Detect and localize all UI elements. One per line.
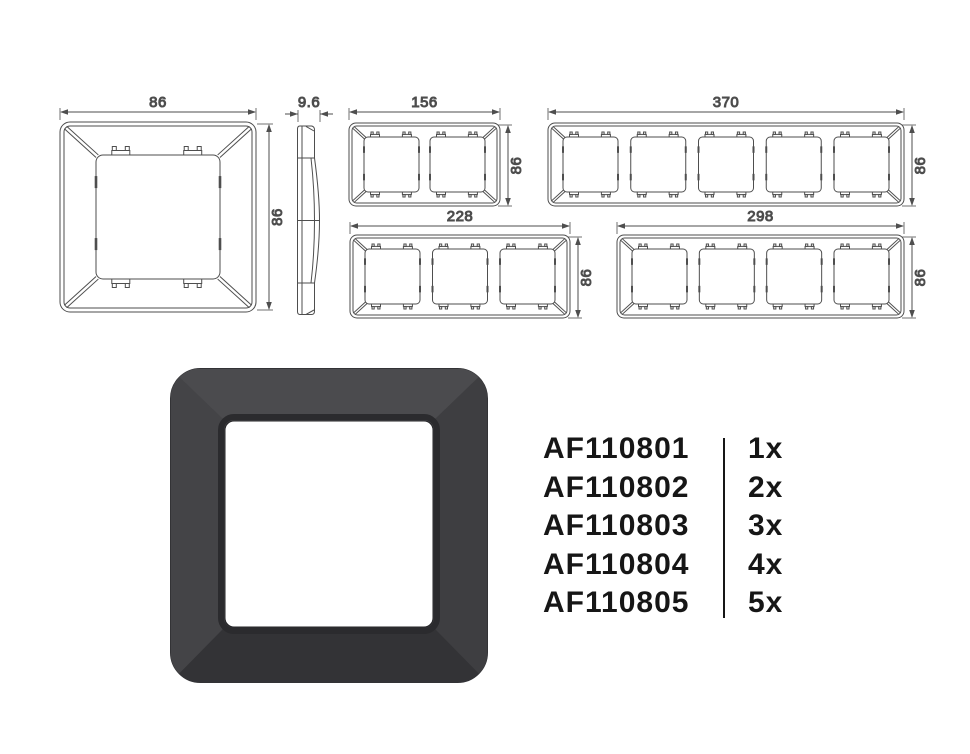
drawing-side-profile: 9.6 [285, 94, 333, 315]
product-code-row: AF1108011x [543, 430, 783, 469]
frame-bevel-right [433, 369, 487, 682]
dimension-label: 86 [508, 157, 525, 175]
arrowhead-icon [548, 109, 556, 115]
dimension-label: 86 [578, 269, 595, 287]
product-code-row: AF1108022x [543, 469, 783, 508]
dimension-label: 86 [912, 157, 929, 175]
product-code-row: AF1108044x [543, 546, 783, 585]
arrowhead-icon [505, 198, 511, 206]
dimension-label: 156 [411, 94, 438, 111]
product-code: AF110805 [543, 586, 724, 620]
dimension-label: 9.6 [298, 94, 320, 111]
arrowhead-icon [575, 310, 581, 318]
arrowhead-icon [290, 111, 298, 117]
arrowhead-icon [266, 124, 272, 132]
arrowhead-icon [562, 223, 570, 229]
drawing-front-1-gang: 8686 [60, 94, 286, 312]
arrowhead-icon [248, 109, 256, 115]
product-code: AF110803 [543, 509, 724, 543]
product-quantity: 3x [748, 509, 783, 543]
product-code-row: AF1108055x [543, 584, 783, 623]
product-quantity: 2x [748, 471, 783, 505]
frame-bevel-left [171, 369, 225, 682]
frame-bevel-top [171, 369, 487, 421]
dimension-label: 370 [713, 94, 740, 111]
list-divider-line [723, 438, 725, 618]
drawing-front-2-gang: 15686 [349, 94, 525, 206]
arrowhead-icon [617, 223, 625, 229]
product-code: AF110801 [543, 432, 724, 466]
drawing-front-4-gang: 29886 [617, 208, 929, 318]
product-code-list: AF1108011xAF1108022xAF1108033xAF1108044x… [543, 430, 783, 623]
dimension-label: 86 [912, 269, 929, 287]
product-code: AF110804 [543, 548, 724, 582]
product-quantity: 5x [748, 586, 783, 620]
product-code-row: AF1108033x [543, 507, 783, 546]
dimension-label: 228 [447, 208, 474, 225]
dimension-label: 298 [747, 208, 774, 225]
arrowhead-icon [492, 109, 500, 115]
arrowhead-icon [896, 109, 904, 115]
canvas: 86869.615686370862288629886 AF1108011xAF… [0, 0, 970, 754]
arrowhead-icon [896, 223, 904, 229]
arrowhead-icon [909, 310, 915, 318]
product-quantity: 1x [748, 432, 783, 466]
drawing-front-5-gang: 37086 [548, 94, 929, 206]
frame-bevel-bottom [171, 627, 487, 682]
dimension-label: 86 [149, 94, 167, 111]
arrowhead-icon [909, 125, 915, 133]
drawing-front-3-gang: 22886 [350, 208, 595, 318]
product-quantity: 4x [748, 548, 783, 582]
arrowhead-icon [909, 237, 915, 245]
arrowhead-icon [350, 223, 358, 229]
arrowhead-icon [349, 109, 357, 115]
arrowhead-icon [60, 109, 68, 115]
arrowhead-icon [505, 125, 511, 133]
product-code: AF110802 [543, 471, 724, 505]
frame-window [225, 421, 433, 627]
arrowhead-icon [575, 237, 581, 245]
arrowhead-icon [266, 302, 272, 310]
product-photo [170, 368, 488, 683]
dimension-label: 86 [269, 208, 286, 226]
arrowhead-icon [909, 198, 915, 206]
arrowhead-icon [320, 111, 328, 117]
